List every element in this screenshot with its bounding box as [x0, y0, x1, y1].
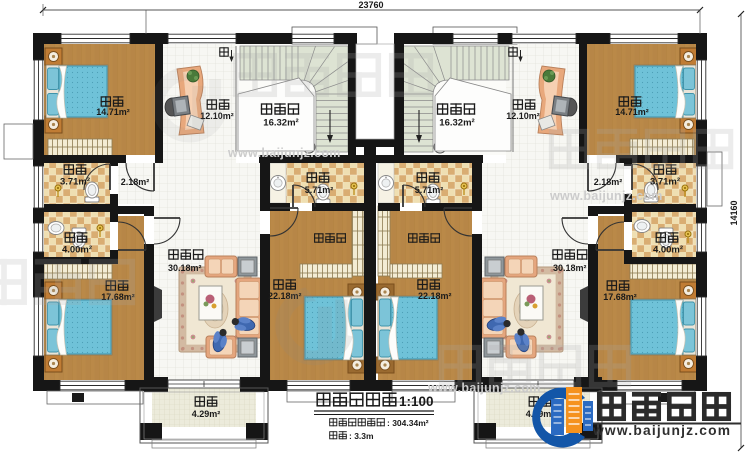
svg-text:: 3.3m: : 3.3m	[349, 431, 374, 441]
svg-text:4.29m²: 4.29m²	[192, 409, 221, 419]
svg-text:2.18m²: 2.18m²	[594, 177, 623, 187]
svg-text:www.baijunjz.com: www.baijunjz.com	[549, 189, 663, 203]
svg-text:14160: 14160	[729, 200, 739, 225]
svg-text:5.71m²: 5.71m²	[305, 185, 334, 195]
svg-text:2.18m²: 2.18m²	[121, 177, 150, 187]
svg-text:1:100: 1:100	[399, 394, 434, 409]
svg-text:4.00m²: 4.00m²	[62, 245, 92, 256]
svg-text:30.18m²: 30.18m²	[168, 263, 202, 273]
svg-text:23760: 23760	[358, 0, 383, 10]
svg-text:3.71m²: 3.71m²	[60, 177, 90, 188]
svg-text:: 304.34m²: : 304.34m²	[387, 418, 429, 428]
svg-text:16.32m²: 16.32m²	[263, 118, 298, 129]
svg-text:22.18m²: 22.18m²	[418, 291, 452, 301]
svg-text:3.71m²: 3.71m²	[650, 177, 680, 188]
svg-text:5.71m²: 5.71m²	[415, 185, 444, 195]
svg-text:16.32m²: 16.32m²	[439, 118, 474, 129]
svg-text:www.baijunjz.com: www.baijunjz.com	[592, 423, 731, 438]
svg-text:14.71m²: 14.71m²	[96, 107, 130, 117]
svg-text:17.68m²: 17.68m²	[603, 292, 637, 302]
svg-text:4.00m²: 4.00m²	[653, 245, 683, 256]
svg-text:www.baijunjz.com: www.baijunjz.com	[427, 381, 541, 395]
svg-text:14.71m²: 14.71m²	[615, 107, 649, 117]
svg-text:www.baijunjz.com: www.baijunjz.com	[227, 146, 341, 160]
svg-text:30.18m²: 30.18m²	[553, 263, 587, 273]
svg-text:12.10m²: 12.10m²	[506, 111, 540, 121]
